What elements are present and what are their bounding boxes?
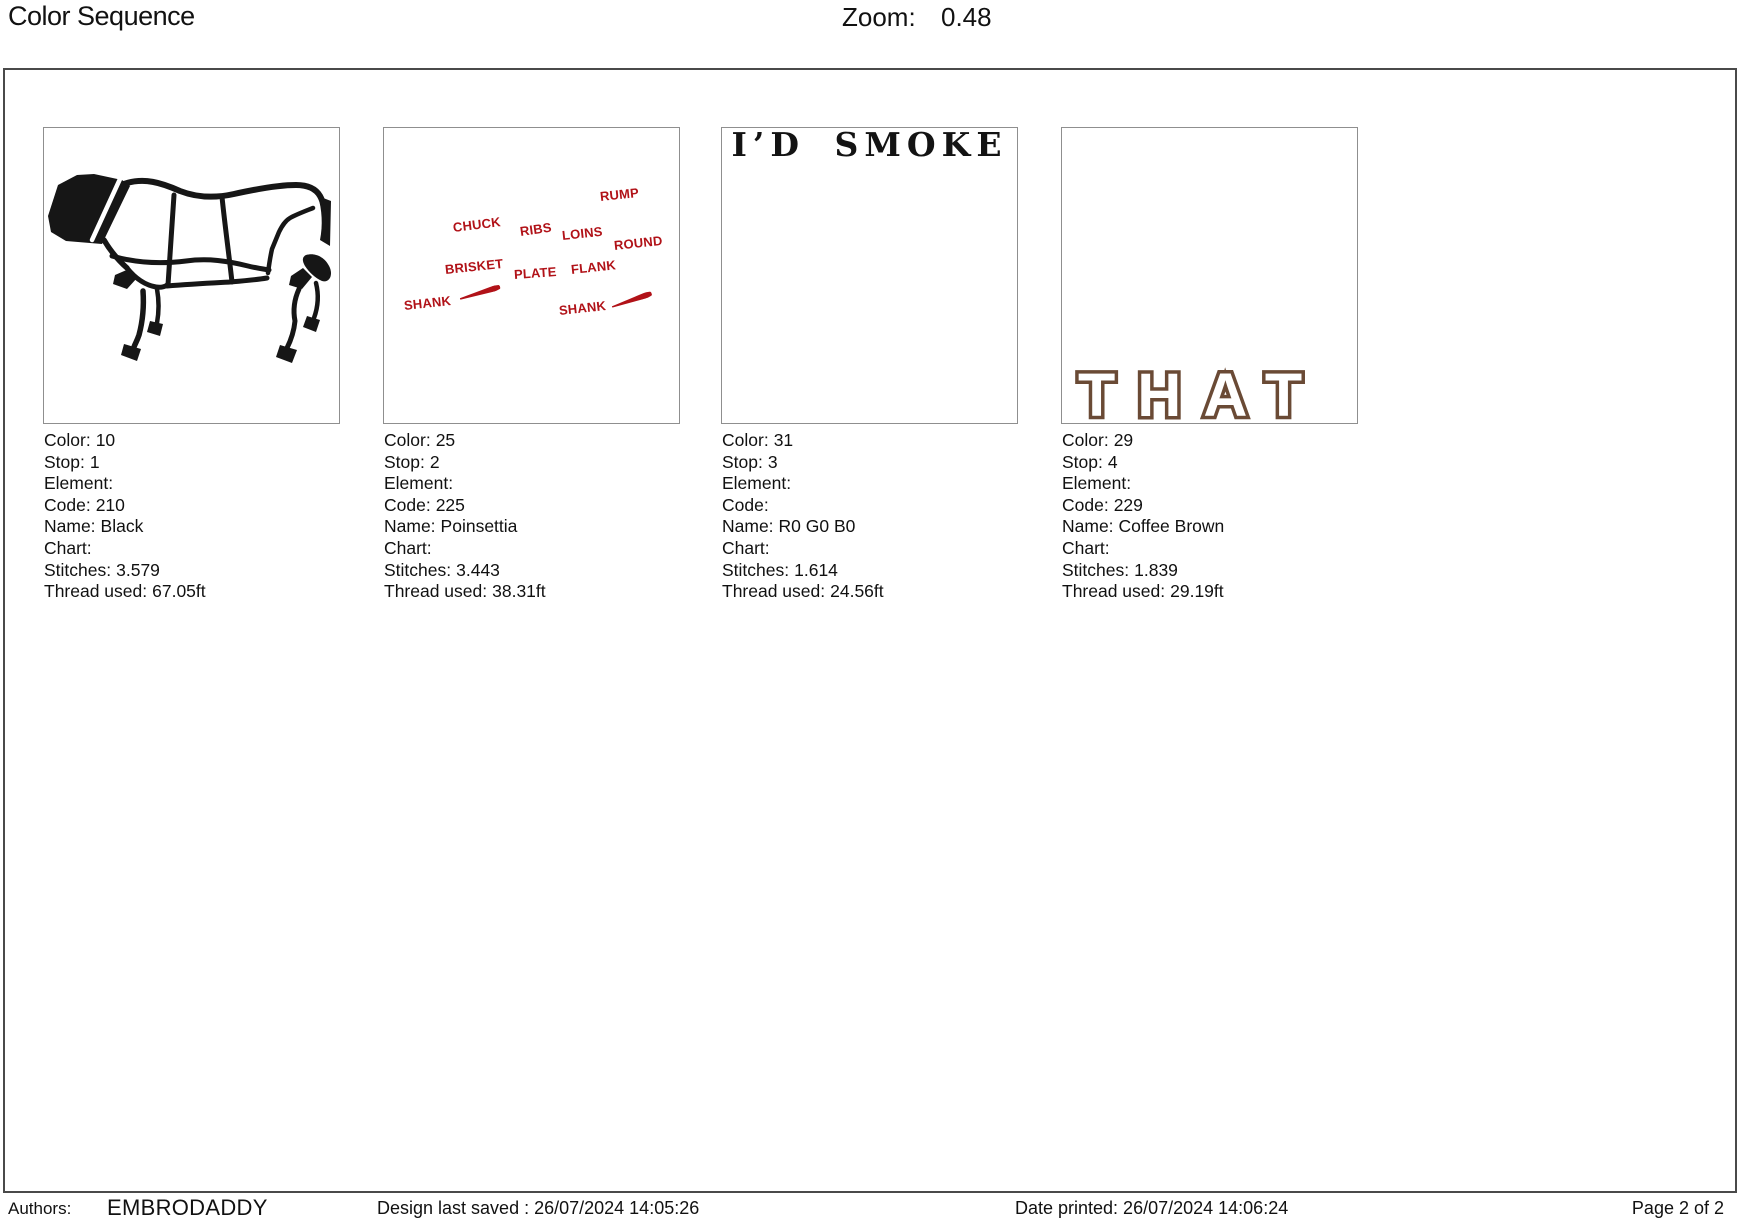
field-value: R0 G0 B0: [779, 516, 856, 536]
field-label: Chart:: [384, 538, 432, 558]
that-outline-lettering: THAT: [1078, 362, 1324, 424]
field-line: Name:Poinsettia: [384, 516, 680, 538]
field-label: Name:: [1062, 516, 1114, 536]
field-label: Name:: [384, 516, 436, 536]
field-label: Color:: [384, 430, 431, 450]
field-line: Stop:1: [44, 452, 340, 474]
field-value: 31: [774, 430, 793, 450]
field-label: Color:: [1062, 430, 1109, 450]
color-stop-card-1: Color:10 Stop:1 Element: Code:210 Name:B…: [43, 127, 340, 424]
field-label: Element:: [384, 473, 453, 493]
field-line: Name:Black: [44, 516, 340, 538]
field-label: Stitches:: [44, 560, 111, 580]
field-label: Element:: [44, 473, 113, 493]
field-line: Stop:2: [384, 452, 680, 474]
field-line: Code:229: [1062, 495, 1358, 517]
field-label: Stop:: [44, 452, 85, 472]
field-label: Stitches:: [1062, 560, 1129, 580]
page-indicator: Page 2 of 2: [1632, 1198, 1724, 1219]
date-printed: Date printed: 26/07/2024 14:06:24: [1015, 1198, 1288, 1219]
field-line: Color:10: [44, 430, 340, 452]
field-label: Stop:: [1062, 452, 1103, 472]
field-label: Stop:: [384, 452, 425, 472]
cut-label-flank: FLANK: [570, 257, 616, 277]
shank-pointer-stroke-right: [611, 290, 653, 309]
field-line: Stop:4: [1062, 452, 1358, 474]
field-value: 1.614: [794, 560, 838, 580]
cut-label-round: ROUND: [613, 233, 663, 253]
shank-pointer-stroke-left: [459, 284, 501, 302]
field-line: Code:225: [384, 495, 680, 517]
cow-cuts-diagram-svg: [44, 128, 339, 423]
field-line: Name:Coffee Brown: [1062, 516, 1358, 538]
field-value: 67.05ft: [152, 581, 206, 601]
field-value: 24.56ft: [830, 581, 884, 601]
field-line: Color:25: [384, 430, 680, 452]
stop-4-caption: Color:29 Stop:4 Element: Code:229 Name:C…: [1062, 430, 1358, 603]
field-label: Code:: [384, 495, 431, 515]
field-value: 29.19ft: [1170, 581, 1224, 601]
field-value: 3.443: [456, 560, 500, 580]
field-line: Element:: [384, 473, 680, 495]
cut-label-brisket: BRISKET: [444, 256, 504, 277]
stop-3-caption: Color:31 Stop:3 Element: Code: Name:R0 G…: [722, 430, 1018, 603]
field-label: Stitches:: [384, 560, 451, 580]
cut-label-rump: RUMP: [599, 185, 639, 204]
field-label: Thread used:: [722, 581, 825, 601]
design-last-saved: Design last saved : 26/07/2024 14:05:26: [377, 1198, 699, 1219]
field-line: Stitches:3.579: [44, 560, 340, 582]
field-label: Code:: [722, 495, 769, 515]
id-smoke-lettering: I’D SMOKE: [722, 127, 1017, 164]
thumbnail-stop-3: I’D SMOKE: [721, 127, 1018, 424]
field-line: Stitches:3.443: [384, 560, 680, 582]
field-line: Stitches:1.614: [722, 560, 1018, 582]
field-value: 3: [768, 452, 778, 472]
field-label: Chart:: [722, 538, 770, 558]
thumbnail-stop-1: [43, 127, 340, 424]
cut-label-shank-left: SHANK: [403, 293, 452, 313]
field-label: Thread used:: [1062, 581, 1165, 601]
field-line: Stitches:1.839: [1062, 560, 1358, 582]
field-value: 4: [1108, 452, 1118, 472]
authors-value: EMBRODADDY: [107, 1195, 268, 1221]
field-value: Poinsettia: [441, 516, 518, 536]
field-line: Name:R0 G0 B0: [722, 516, 1018, 538]
cut-label-shank-right: SHANK: [558, 298, 607, 318]
field-label: Color:: [722, 430, 769, 450]
field-label: Code:: [1062, 495, 1109, 515]
field-line: Stop:3: [722, 452, 1018, 474]
field-value: 25: [436, 430, 455, 450]
field-label: Chart:: [44, 538, 92, 558]
field-label: Name:: [44, 516, 96, 536]
field-label: Code:: [44, 495, 91, 515]
field-line: Thread used:24.56ft: [722, 581, 1018, 603]
field-line: Code:: [722, 495, 1018, 517]
color-stop-card-3: I’D SMOKE Color:31 Stop:3 Element: Code:…: [721, 127, 1018, 424]
zoom-label: Zoom:: [842, 2, 916, 33]
stop-1-caption: Color:10 Stop:1 Element: Code:210 Name:B…: [44, 430, 340, 603]
field-value: 29: [1114, 430, 1133, 450]
field-label: Color:: [44, 430, 91, 450]
cut-label-loins: LOINS: [561, 224, 603, 243]
field-label: Element:: [722, 473, 791, 493]
field-line: Element:: [1062, 473, 1358, 495]
field-value: 10: [96, 430, 115, 450]
field-value: 225: [436, 495, 465, 515]
field-line: Chart:: [44, 538, 340, 560]
page-title: Color Sequence: [8, 1, 195, 32]
field-value: 38.31ft: [492, 581, 546, 601]
field-label: Thread used:: [384, 581, 487, 601]
field-label: Element:: [1062, 473, 1131, 493]
stop-2-caption: Color:25 Stop:2 Element: Code:225 Name:P…: [384, 430, 680, 603]
field-line: Color:31: [722, 430, 1018, 452]
field-value: 210: [96, 495, 125, 515]
field-line: Thread used:38.31ft: [384, 581, 680, 603]
field-value: 2: [430, 452, 440, 472]
color-stop-card-4: THAT Color:29 Stop:4 Element: Code:229 N…: [1061, 127, 1358, 424]
field-value: 1.839: [1134, 560, 1178, 580]
field-value: 229: [1114, 495, 1143, 515]
field-value: Coffee Brown: [1119, 516, 1225, 536]
field-value: Black: [101, 516, 144, 536]
thumbnail-stop-4: THAT: [1061, 127, 1358, 424]
field-value: 1: [90, 452, 100, 472]
authors-label: Authors:: [8, 1199, 71, 1219]
field-line: Color:29: [1062, 430, 1358, 452]
zoom-value: 0.48: [941, 2, 992, 33]
field-line: Code:210: [44, 495, 340, 517]
field-line: Chart:: [384, 538, 680, 560]
cut-label-plate: PLATE: [513, 264, 557, 282]
field-label: Chart:: [1062, 538, 1110, 558]
field-label: Stitches:: [722, 560, 789, 580]
field-line: Chart:: [1062, 538, 1358, 560]
thumbnail-stop-2: RUMP CHUCK RIBS LOINS ROUND BRISKET PLAT…: [383, 127, 680, 424]
field-value: 3.579: [116, 560, 160, 580]
color-stop-card-2: RUMP CHUCK RIBS LOINS ROUND BRISKET PLAT…: [383, 127, 680, 424]
field-line: Element:: [44, 473, 340, 495]
cut-label-ribs: RIBS: [519, 220, 553, 239]
field-label: Thread used:: [44, 581, 147, 601]
field-line: Thread used:29.19ft: [1062, 581, 1358, 603]
field-label: Name:: [722, 516, 774, 536]
field-line: Element:: [722, 473, 1018, 495]
field-label: Stop:: [722, 452, 763, 472]
field-line: Thread used:67.05ft: [44, 581, 340, 603]
cut-label-chuck: CHUCK: [452, 214, 501, 235]
field-line: Chart:: [722, 538, 1018, 560]
